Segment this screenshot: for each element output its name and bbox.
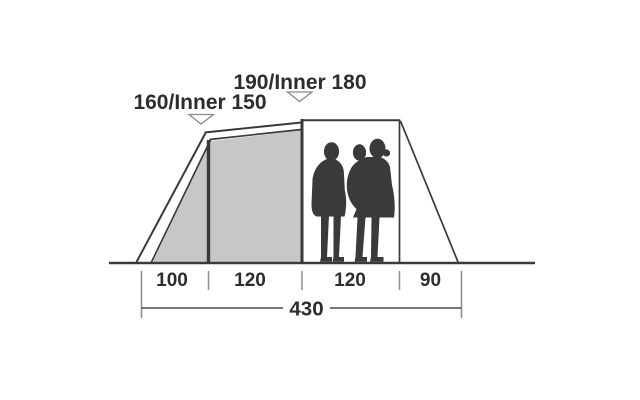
segment-dimension-porch: 100 — [156, 270, 188, 291]
segment-dimension-main: 120 — [334, 270, 366, 291]
people-silhouette — [312, 139, 395, 262]
rear-guy-slant — [401, 121, 459, 262]
segment-dimension-front: 120 — [234, 270, 266, 291]
segment-dimension-rear: 90 — [420, 270, 441, 291]
main-height-label: 190/Inner 180 — [233, 71, 366, 94]
total-length-label: 430 — [289, 298, 323, 321]
adult-with-child-silhouette — [347, 139, 395, 262]
adult-standing-silhouette — [312, 142, 347, 262]
diagram-canvas: 160/Inner 150 190/Inner 180 100 120 120 … — [0, 0, 640, 400]
canopy-fill — [153, 131, 301, 262]
tent-dimension-diagram: 160/Inner 150 190/Inner 180 100 120 120 … — [0, 0, 640, 400]
porch-height-label: 160/Inner 150 — [133, 91, 266, 114]
arrow-down-icon — [189, 115, 214, 125]
